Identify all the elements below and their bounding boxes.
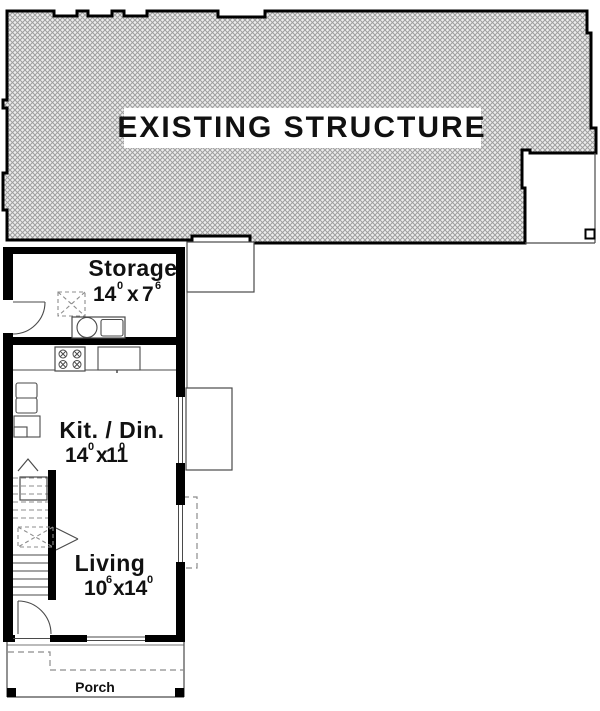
storage-dim-in1: 0 [117, 280, 123, 292]
right-wall-mid [176, 463, 185, 505]
kitdin-dim-ft2: 11 [106, 444, 129, 467]
existing-annex-upper [187, 242, 254, 292]
laundry-counter [72, 317, 125, 338]
storage-dim-sep: x [127, 283, 139, 306]
kitdin-dim-in2: 0 [119, 441, 125, 453]
right-wall-lower [176, 562, 185, 642]
kitdin-dim-in1: 0 [88, 441, 94, 453]
living-room-label: Living 10 6 x 14 0 [75, 550, 153, 600]
porch-post [586, 230, 595, 239]
left-wall-lower [3, 333, 13, 642]
existing-structure-label: EXISTING STRUCTURE [117, 111, 486, 144]
understair-doors [56, 528, 78, 550]
refrigerator-icon [16, 383, 37, 413]
front-wall-segment [50, 635, 87, 642]
kitchen-sink-icon [98, 347, 140, 373]
front-wall-right [145, 635, 185, 642]
storage-dim-ft2: 7 [142, 283, 154, 306]
ceiling-access-icon [58, 292, 85, 316]
living-dim-ft1: 10 [84, 577, 107, 600]
kitdin-dim-ft1: 14 [65, 444, 89, 467]
porch: Porch [7, 642, 184, 697]
kitdin-name: Kit. / Din. [59, 417, 164, 443]
stair-wall [48, 470, 56, 600]
floor-plan-drawing: EXISTING STRUCTURE [0, 0, 600, 711]
appliance-icon [101, 320, 123, 337]
porch-post-right [175, 688, 184, 697]
existing-porch-outline [525, 153, 595, 243]
storage-dim-in2: 6 [155, 280, 161, 292]
left-wall-upper [3, 247, 13, 300]
sink-basin-icon [77, 318, 97, 338]
living-dim-ft2: 14 [124, 577, 148, 600]
porch-label: Porch [75, 679, 115, 695]
storage-room-label: Storage 14 0 x 7 6 [88, 255, 177, 306]
storage-top-wall [3, 247, 185, 254]
range-icon [55, 347, 85, 371]
porch-post-left [7, 688, 16, 697]
living-dim-in2: 0 [147, 574, 153, 586]
porch-roof-dashed [8, 652, 184, 670]
stair-treads-below [13, 555, 48, 595]
storage-name: Storage [88, 255, 177, 281]
right-side-reference-lines [183, 292, 232, 568]
front-door [13, 601, 51, 639]
stairs [13, 459, 53, 595]
living-dim-in1: 6 [106, 574, 112, 586]
storage-door [13, 302, 45, 334]
side-bay-outline [186, 388, 232, 470]
living-name: Living [75, 550, 146, 576]
roof-overhang-dashed [183, 497, 197, 568]
floor-plan-sheet: EXISTING STRUCTURE [0, 0, 600, 711]
stair-direction-arrow [18, 459, 38, 471]
stair-landing [20, 477, 47, 500]
stair-treads-above [13, 478, 48, 518]
base-cabinet-icon [14, 416, 40, 437]
storage-dim-ft1: 14 [93, 283, 117, 306]
attic-access-box [18, 527, 53, 547]
kitchen-dining-label: Kit. / Din. 14 0 x 11 0 [59, 417, 164, 467]
